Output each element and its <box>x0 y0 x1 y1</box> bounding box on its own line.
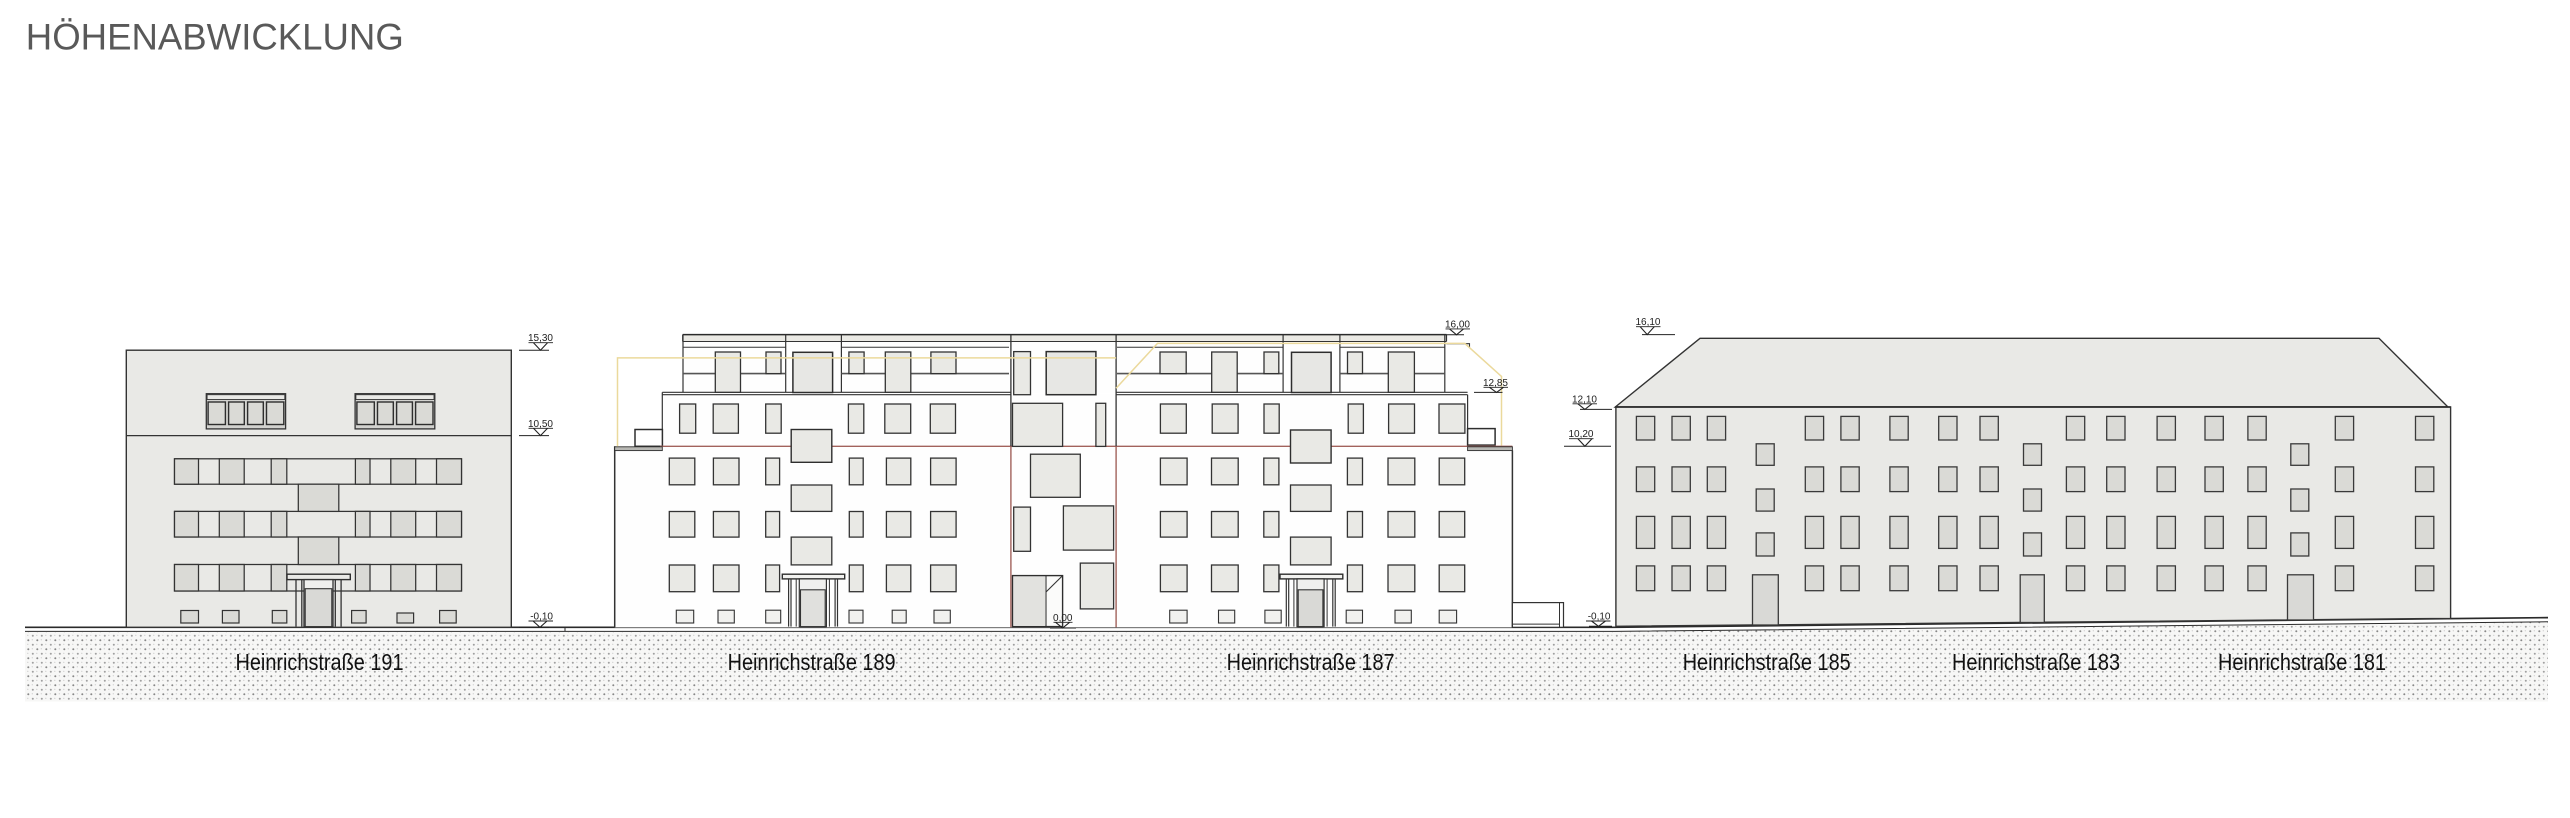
svg-text:Heinrichstraße 187: Heinrichstraße 187 <box>1227 649 1395 675</box>
svg-text:Heinrichstraße 191: Heinrichstraße 191 <box>236 649 404 675</box>
svg-text:HÖHENABWICKLUNG: HÖHENABWICKLUNG <box>26 17 404 58</box>
svg-text:Heinrichstraße 185: Heinrichstraße 185 <box>1683 649 1851 675</box>
svg-text:Heinrichstraße 181: Heinrichstraße 181 <box>2218 649 2386 675</box>
svg-text:Heinrichstraße 183: Heinrichstraße 183 <box>1952 649 2120 675</box>
svg-text:Heinrichstraße 189: Heinrichstraße 189 <box>728 649 896 675</box>
